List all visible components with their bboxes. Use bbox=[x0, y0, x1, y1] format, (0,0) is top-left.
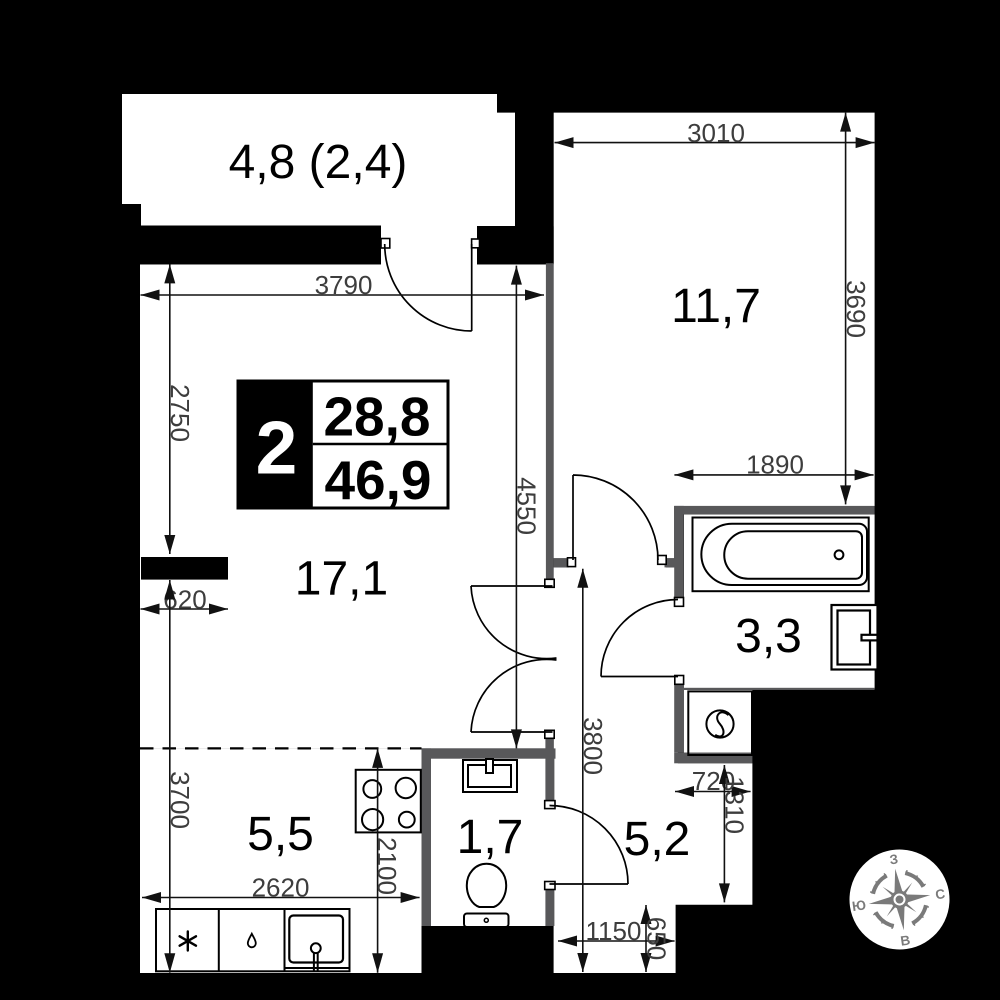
svg-text:28,8: 28,8 bbox=[323, 386, 430, 448]
svg-text:2750: 2750 bbox=[165, 384, 195, 442]
svg-text:650: 650 bbox=[641, 917, 671, 960]
svg-text:2100: 2100 bbox=[372, 837, 402, 895]
svg-text:3690: 3690 bbox=[841, 280, 871, 338]
svg-text:3790: 3790 bbox=[315, 270, 373, 300]
svg-text:5,5: 5,5 bbox=[247, 808, 314, 861]
svg-text:11,7: 11,7 bbox=[671, 280, 761, 333]
svg-text:Ю: Ю bbox=[851, 897, 867, 914]
svg-text:1890: 1890 bbox=[746, 450, 804, 480]
svg-text:3700: 3700 bbox=[165, 771, 195, 829]
svg-text:3010: 3010 bbox=[687, 118, 745, 148]
svg-text:2: 2 bbox=[256, 406, 298, 490]
svg-text:4550: 4550 bbox=[512, 477, 542, 535]
svg-text:46,9: 46,9 bbox=[324, 449, 431, 511]
svg-text:3800: 3800 bbox=[578, 717, 608, 775]
svg-text:5,2: 5,2 bbox=[624, 813, 691, 866]
svg-text:1310: 1310 bbox=[720, 776, 750, 834]
svg-text:3,3: 3,3 bbox=[735, 610, 802, 663]
svg-text:1150: 1150 bbox=[586, 916, 642, 946]
svg-text:1,7: 1,7 bbox=[457, 811, 524, 864]
svg-text:2620: 2620 bbox=[252, 873, 310, 903]
svg-text:17,1: 17,1 bbox=[295, 553, 388, 606]
svg-text:4,8 (2,4): 4,8 (2,4) bbox=[229, 136, 408, 189]
